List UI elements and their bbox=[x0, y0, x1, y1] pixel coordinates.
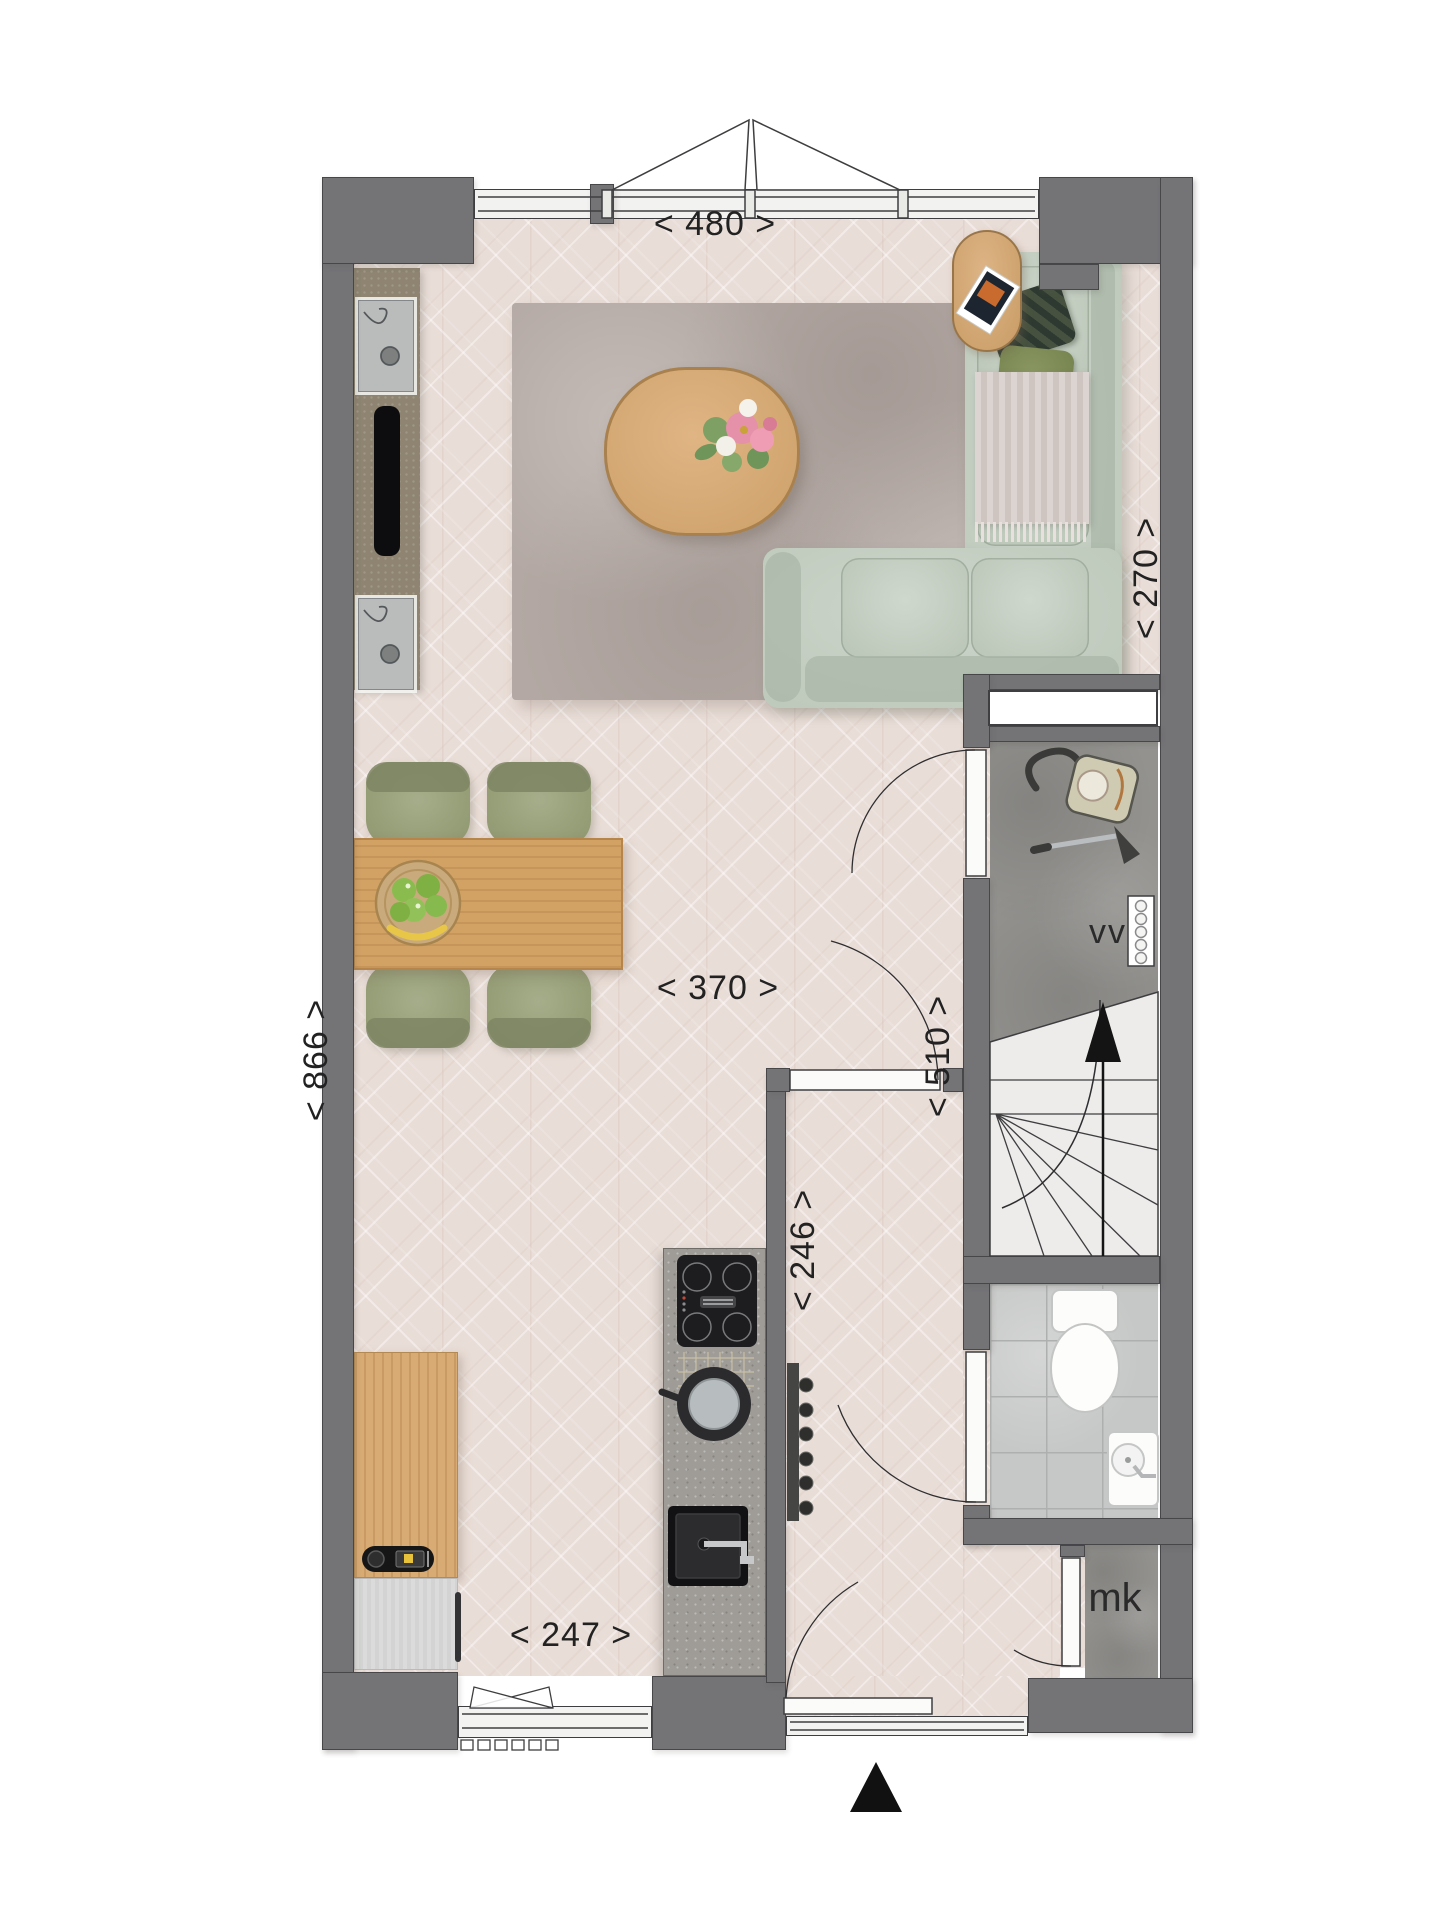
window-top-pier bbox=[590, 184, 614, 224]
blanket-fringe bbox=[975, 522, 1089, 542]
french-doors-swing-icon bbox=[612, 120, 900, 190]
dining-chair bbox=[366, 762, 470, 846]
side-table bbox=[952, 230, 1022, 352]
floor-entry bbox=[963, 1545, 1060, 1678]
window-sill-ticks bbox=[461, 1740, 558, 1750]
wall-top-left-block bbox=[322, 177, 474, 264]
casement-swing-icon bbox=[470, 1687, 553, 1708]
dining-chair bbox=[487, 964, 591, 1048]
dining-chair bbox=[366, 964, 470, 1048]
floor-door-strip bbox=[786, 1676, 1028, 1716]
wall-closet-band-lower bbox=[963, 726, 1160, 742]
label-mk: mk bbox=[1065, 1576, 1165, 1620]
wall-hall-stub-left bbox=[766, 1068, 790, 1092]
floor-bathroom bbox=[990, 1284, 1158, 1518]
window-bottom bbox=[458, 1706, 652, 1738]
floor-utility-vv bbox=[990, 742, 1158, 1045]
kitchen-island bbox=[663, 1248, 766, 1676]
dim-living-depth: < 270 > bbox=[1126, 478, 1166, 678]
wall-column-a bbox=[963, 674, 990, 748]
speaker-bottom bbox=[358, 598, 414, 690]
closet-niche bbox=[988, 690, 1158, 726]
wall-kitchen-block bbox=[652, 1676, 786, 1750]
entrance-arrow-icon bbox=[850, 1762, 902, 1812]
wall-bath-bottom bbox=[963, 1518, 1193, 1545]
floor-vv-door-gap bbox=[963, 746, 990, 880]
speaker-top bbox=[358, 300, 414, 392]
floorplan-canvas: < 480 > < 270 > < 370 > < 510 > < 866 > … bbox=[0, 0, 1440, 1920]
dining-chair bbox=[487, 762, 591, 846]
dim-hall-depth: < 510 > bbox=[918, 956, 958, 1156]
wall-mk-stub bbox=[1060, 1545, 1085, 1557]
dim-top-width: < 480 > bbox=[615, 204, 815, 244]
tv-screen bbox=[374, 406, 400, 556]
wall-stairs-bottom bbox=[963, 1256, 1160, 1284]
sofa-throw-blanket bbox=[975, 372, 1089, 524]
kitchen-appliance-white bbox=[354, 1578, 458, 1670]
dim-kitchen-depth: < 246 > bbox=[783, 1150, 823, 1350]
coffee-table bbox=[604, 367, 800, 536]
appliance-handle bbox=[455, 1592, 461, 1662]
entrance-threshold bbox=[786, 1716, 1028, 1736]
wall-top-right-step bbox=[1039, 264, 1099, 290]
wall-bottom-right-block bbox=[1028, 1678, 1193, 1733]
label-vv: vv bbox=[1058, 910, 1158, 954]
kitchen-tall-cabinet bbox=[354, 1352, 458, 1578]
dining-table bbox=[353, 838, 623, 970]
dim-total-depth: < 866 > bbox=[296, 960, 336, 1160]
wall-bottom-left-block bbox=[322, 1672, 458, 1750]
coat-rack bbox=[787, 1363, 799, 1521]
dim-living-width: < 370 > bbox=[618, 968, 818, 1008]
dim-kitchen-width: < 247 > bbox=[471, 1615, 671, 1655]
floor-bath-door-gap bbox=[963, 1348, 990, 1508]
wall-right bbox=[1160, 177, 1193, 1733]
